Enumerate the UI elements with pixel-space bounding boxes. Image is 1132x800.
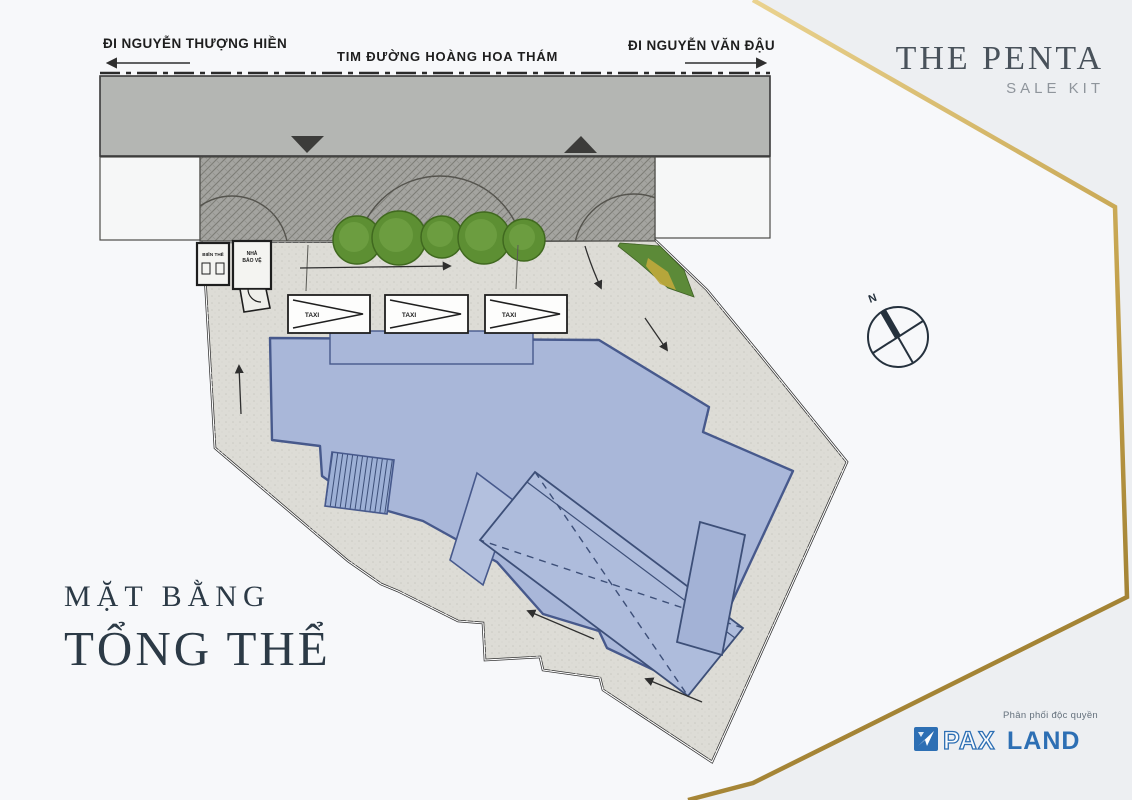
paxland-logo-land: LAND [1007, 727, 1080, 754]
transformer-label: BIẾN THẾ [202, 251, 223, 257]
tree [372, 211, 426, 265]
plan-title-line2: TỔNG THỂ [64, 620, 331, 677]
guard-house-label: NHÀ [247, 250, 258, 257]
taxi-bay: TAXI [288, 295, 370, 333]
curb-right [655, 157, 770, 238]
project-subtitle: SALE KIT [896, 80, 1104, 97]
project-title: THE PENTA [896, 40, 1104, 78]
stair-block [325, 452, 394, 514]
street-label-right: ĐI NGUYỄN VĂN ĐẬU [628, 38, 775, 53]
svg-text:TAXI: TAXI [402, 312, 417, 319]
street-label-left: ĐI NGUYỄN THƯỢNG HIỀN [103, 36, 287, 51]
paxland-logo-icon [914, 727, 938, 751]
paxland-logo-pax: PAX [943, 727, 996, 754]
site-plan-svg: BIẾN THẾ NHÀ BẢO VỆ TAXI TAXI TAXI [0, 0, 1132, 800]
guard-house-label2: BẢO VỆ [242, 256, 262, 264]
plan-title-line1: MẶT BẰNG [64, 580, 331, 614]
curb-left [100, 157, 200, 240]
guard-house [233, 241, 271, 289]
taxi-bays: TAXI TAXI TAXI [288, 295, 567, 333]
dropoff-podium [330, 331, 533, 364]
tree [458, 212, 510, 264]
taxi-bay: TAXI [385, 295, 468, 333]
sale-kit-page: BIẾN THẾ NHÀ BẢO VỆ TAXI TAXI TAXI [0, 0, 1132, 800]
distribution-note: Phân phối độc quyền [912, 710, 1098, 721]
tree [503, 219, 545, 261]
svg-text:TAXI: TAXI [305, 312, 320, 319]
svg-text:TAXI: TAXI [502, 312, 517, 319]
road [100, 63, 770, 156]
tree [421, 216, 463, 258]
street-label-center: TIM ĐƯỜNG HOÀNG HOA THÁM [337, 49, 558, 64]
brand-block: THE PENTA SALE KIT [896, 40, 1104, 97]
paxland-logo: PAX LAND [912, 722, 1102, 754]
taxi-bay: TAXI [485, 295, 567, 333]
distributor-block: Phân phối độc quyền PAX LAND [912, 710, 1102, 759]
plan-title-block: MẶT BẰNG TỔNG THỂ [64, 580, 331, 677]
